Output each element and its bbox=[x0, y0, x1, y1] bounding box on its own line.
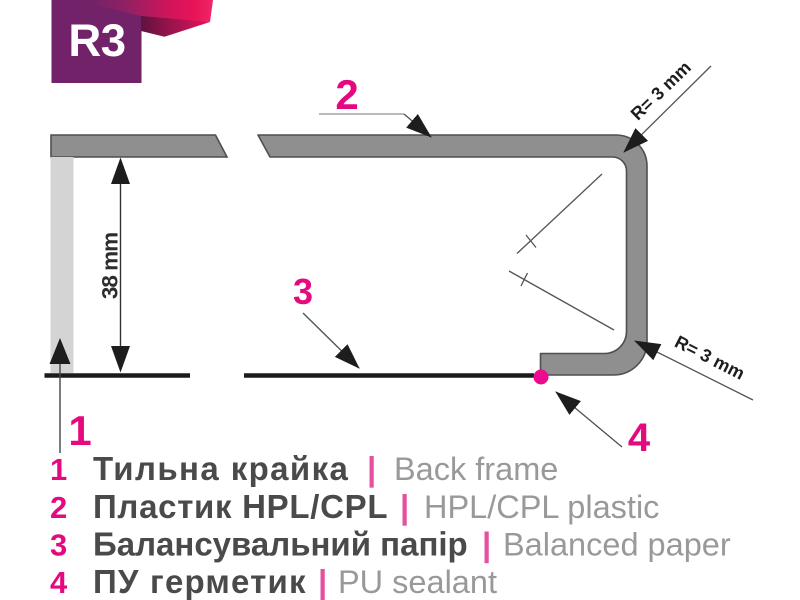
svg-text:|: | bbox=[367, 450, 376, 487]
svg-text:|: | bbox=[318, 563, 327, 600]
svg-text:4: 4 bbox=[628, 416, 651, 460]
svg-text:4: 4 bbox=[50, 565, 68, 600]
svg-text:38 mm: 38 mm bbox=[98, 233, 123, 299]
svg-text:Back frame: Back frame bbox=[394, 451, 558, 487]
svg-text:Balanced paper: Balanced paper bbox=[503, 527, 731, 563]
svg-text:|: | bbox=[400, 488, 409, 525]
svg-text:2: 2 bbox=[335, 71, 358, 118]
svg-text:2: 2 bbox=[50, 490, 67, 525]
svg-text:Балансувальний папір: Балансувальний папір bbox=[93, 526, 468, 563]
svg-text:Пластик HPL/CPL: Пластик HPL/CPL bbox=[93, 488, 388, 525]
svg-text:PU sealant: PU sealant bbox=[338, 564, 497, 600]
svg-text:3: 3 bbox=[293, 271, 313, 312]
svg-text:3: 3 bbox=[50, 528, 67, 563]
svg-text:Тильна крайка: Тильна крайка bbox=[93, 450, 349, 487]
svg-text:R3: R3 bbox=[68, 15, 125, 66]
svg-text:|: | bbox=[482, 526, 491, 563]
svg-text:1: 1 bbox=[68, 407, 91, 454]
svg-text:ПУ герметик: ПУ герметик bbox=[93, 563, 307, 600]
svg-text:HPL/CPL plastic: HPL/CPL plastic bbox=[424, 489, 659, 525]
svg-text:1: 1 bbox=[50, 452, 67, 487]
